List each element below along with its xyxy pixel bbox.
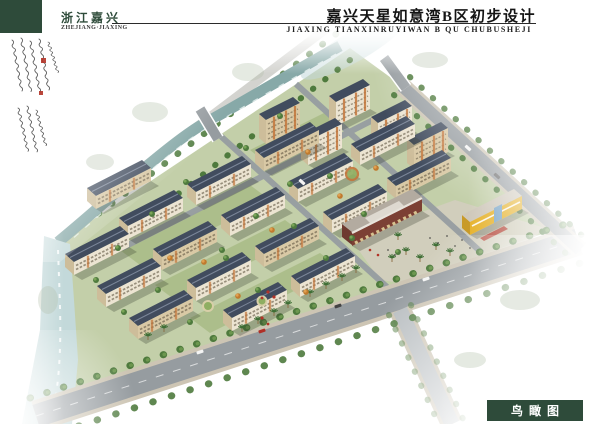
calligraphy-inscription: [4, 36, 74, 166]
corner-logo-block: [0, 0, 42, 33]
seal-stamp: [39, 91, 43, 95]
project-title-en: JIAXING TIANXINRUYIWAN B QU CHUBUSHEJI: [286, 25, 532, 34]
view-label-text: 鸟瞰图: [505, 402, 565, 419]
project-title-cn: 嘉兴天星如意湾B区初步设计: [326, 5, 536, 26]
aerial-rendering: [0, 0, 600, 424]
region-name-en: ZHEJIANG·JIAXING: [61, 25, 128, 31]
seal-stamp: [41, 58, 46, 63]
view-label-box: 鸟瞰图: [487, 400, 583, 421]
presentation-sheet: 浙江嘉兴 ZHEJIANG·JIAXING 嘉兴天星如意湾B区初步设计 JIAX…: [0, 0, 600, 424]
